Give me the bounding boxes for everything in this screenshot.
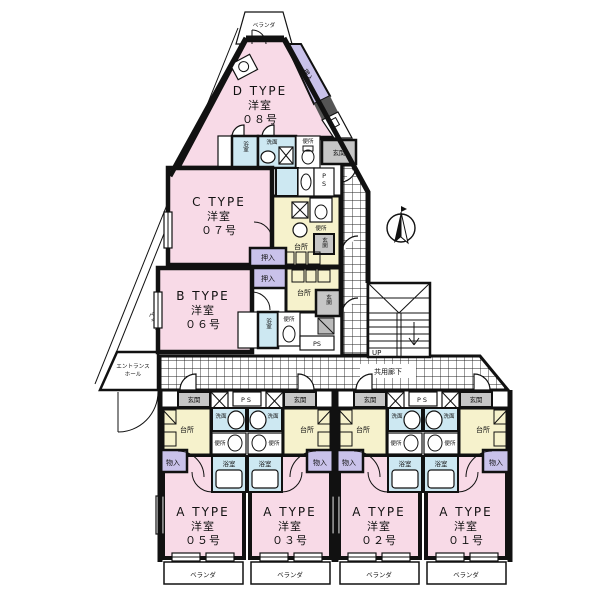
toilet-b06-label: 便所 [283, 315, 295, 323]
storage-a03-label: 物入 [313, 458, 327, 467]
unit-d08-number: ０８号 [242, 113, 278, 126]
kitchen-a02-label: 台所 [356, 425, 370, 434]
pipe-space-pair1-label: PS [241, 396, 253, 404]
unit-a05-room: 洋室 [191, 519, 215, 533]
bath-b06-label: 浴室 [265, 317, 272, 330]
toilet-c07 [310, 198, 332, 222]
entrance-a01-label: 玄関 [470, 395, 483, 404]
unit-a05-type: A TYPE [176, 505, 230, 519]
unit-a02-type: A TYPE [352, 505, 406, 519]
veranda-label-top: ベランダ [253, 21, 276, 29]
closet-box [238, 312, 258, 348]
unit-a05-number: ０５号 [185, 534, 221, 547]
unit-a03-number: ０３号 [272, 534, 308, 547]
unit-a02-number: ０２号 [361, 534, 397, 547]
bath-box-c07 [276, 168, 298, 196]
wash-a02-label: 洗面 [391, 412, 403, 420]
common-corridor [160, 356, 508, 390]
basin-icon [261, 151, 275, 163]
closet-b06-label: 押入 [261, 274, 275, 283]
unit-b06-room: 洋室 [191, 303, 215, 317]
unit-a01-room: 洋室 [454, 519, 478, 533]
vertical-corridor [342, 165, 368, 355]
unit-a03-room: 洋室 [278, 519, 302, 533]
wash-a03-label: 洗面 [267, 412, 279, 420]
entrance-hall: エントランス ホール [100, 352, 158, 432]
wash-box-c07 [298, 168, 314, 196]
bath-a01-label: 浴室 [435, 459, 448, 468]
toilet-a01-label: 便所 [444, 439, 456, 447]
unit-b06: 台所 押入 B TYPE 洋室 ０６号 玄関 浴室 便所 PS [154, 268, 358, 352]
unit-d08-room: 洋室 [248, 98, 272, 112]
compass-icon [387, 206, 415, 243]
entrance-hall-label-1: エントランス [116, 363, 150, 370]
sink-icon [293, 223, 307, 237]
bath-a02-label: 浴室 [399, 459, 412, 468]
unit-a02-room: 洋室 [367, 519, 391, 533]
toilet-a05-label: 便所 [214, 439, 226, 447]
a-unit-pair-2 [332, 374, 510, 584]
basin-icon [250, 411, 266, 429]
storage-a02-label: 物入 [342, 458, 356, 467]
entrance-a02-label: 玄関 [364, 395, 377, 404]
unit-c07-number: ０７号 [201, 224, 237, 237]
toilet-a03-label: 便所 [268, 439, 280, 447]
unit-b06-type: B TYPE [176, 289, 230, 303]
toilet-a02-label: 便所 [390, 439, 402, 447]
unit-c07-room: 洋室 [207, 209, 231, 223]
unit-c07-type: C TYPE [192, 195, 246, 209]
toilet-d08-label: 便所 [302, 137, 314, 145]
main-entrance-door-arc [118, 392, 158, 432]
closet-c07-label: 押入 [261, 253, 275, 262]
wash-d08-label: 洗面 [266, 138, 278, 146]
unit-a01-number: ０１号 [448, 534, 484, 547]
entrance-a03-label: 玄関 [294, 395, 307, 404]
bathtub-icon [252, 470, 278, 488]
unit-b06-number: ０６号 [185, 318, 221, 331]
door-arc [252, 292, 270, 310]
veranda-a02-label: ベランダ [366, 570, 392, 579]
unit-a01-type: A TYPE [439, 505, 493, 519]
storage-a01-label: 物入 [489, 458, 503, 467]
kitchen-b06-label: 台所 [297, 288, 311, 297]
floor-plan: ベランダ ベランダ ベランダ エントランス ホール D TYPE 洋室 ０８号 … [0, 0, 600, 600]
pipe-space-pair2-label: PS [417, 396, 429, 404]
unit-d08-type: D TYPE [233, 84, 288, 98]
entrance-b06-label: 玄関 [325, 293, 332, 307]
veranda-a05-label: ベランダ [190, 570, 216, 579]
veranda-a03-label: ベランダ [277, 570, 303, 579]
stairs-up-label: UP [372, 349, 381, 357]
corridor-label: 共用廊下 [374, 367, 402, 376]
veranda-a01-label: ベランダ [453, 570, 479, 579]
a-unit-pair-structure [156, 374, 334, 584]
closet-box [218, 136, 232, 168]
kitchen-a03-label: 台所 [300, 425, 314, 434]
entrance-hall-label-2: ホール [125, 371, 142, 378]
pipe-space-c07-label: PS [320, 172, 328, 188]
unit-a03-type: A TYPE [263, 505, 317, 519]
kitchen-a01-label: 台所 [476, 425, 490, 434]
entrance-c07-label: 玄関 [321, 236, 328, 250]
basin-icon [228, 411, 244, 429]
bathtub-icon [216, 470, 242, 488]
floor-plan-svg: ベランダ ベランダ ベランダ エントランス ホール D TYPE 洋室 ０８号 … [0, 0, 600, 600]
bath-d08-label: 浴室 [242, 140, 249, 153]
staircase: UP [368, 283, 430, 357]
toilet-c07-label: 便所 [315, 224, 327, 232]
entrance-a05-label: 玄関 [188, 395, 201, 404]
bath-a05-label: 浴室 [223, 459, 236, 468]
storage-a05-label: 物入 [166, 458, 180, 467]
wash-a05-label: 洗面 [215, 412, 227, 420]
pipe-space-b06-label: PS [313, 340, 321, 348]
wash-a01-label: 洗面 [443, 412, 455, 420]
unit-c07: 台所 C TYPE 洋室 ０７号 PS 便所 玄関 押入 [164, 168, 358, 266]
bath-a03-label: 浴室 [259, 459, 272, 468]
kitchen-c07-label: 台所 [294, 242, 308, 251]
kitchen-a05-label: 台所 [180, 425, 194, 434]
